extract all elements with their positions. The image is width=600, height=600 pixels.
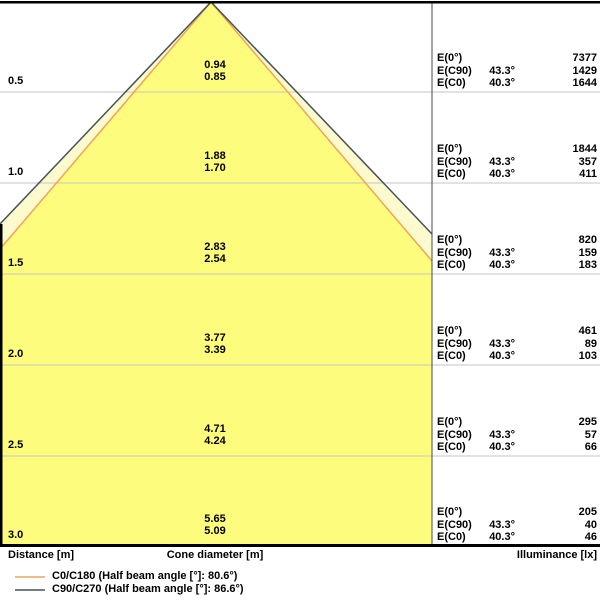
distance-tick-2-5: 2.5 — [8, 439, 23, 451]
e-label: E(C0) — [437, 531, 466, 543]
e-label: E(C90) — [437, 519, 472, 531]
table-row: E(0°)820 — [437, 234, 597, 247]
cone-diameter-values-0-5: 0.94 0.85 — [135, 59, 295, 83]
legend-label-c0-c180: C0/C180 (Half beam angle [°]: 80.6°) — [52, 570, 237, 583]
illuminance-value: 66 — [585, 441, 597, 453]
cone-diameter-c0: 0.85 — [135, 71, 295, 83]
table-row: E(0°)295 — [437, 416, 597, 429]
distance-tick-0-5: 0.5 — [8, 75, 23, 87]
e-label: E(C90) — [437, 65, 472, 77]
cone-diameter-c0: 5.09 — [135, 525, 295, 537]
e-label: E(0°) — [437, 234, 462, 246]
illuminance-value: 103 — [579, 350, 597, 362]
illuminance-value: 295 — [579, 416, 597, 428]
beam-angle: 43.3° — [489, 65, 515, 77]
illuminance-axis-label: Illuminance [lx] — [517, 549, 597, 561]
cone-diameter-c90: 3.77 — [135, 332, 295, 344]
e-label: E(C0) — [437, 168, 466, 180]
beam-angle: 43.3° — [489, 338, 515, 350]
beam-angle: 40.3° — [489, 350, 515, 362]
illuminance-table-0-5: E(0°)7377 E(C90)43.3°1429 E(C0)40.3°1644 — [437, 52, 597, 90]
illuminance-value: 159 — [579, 247, 597, 259]
e-label: E(C0) — [437, 77, 466, 89]
e-label: E(C0) — [437, 441, 466, 453]
table-row: E(C90)43.3°40 — [437, 519, 597, 532]
illuminance-value: 1429 — [573, 65, 597, 77]
cone-diameter-c0: 2.54 — [135, 253, 295, 265]
e-label: E(C0) — [437, 350, 466, 362]
e-label: E(0°) — [437, 506, 462, 518]
cone-diameter-c90: 0.94 — [135, 59, 295, 71]
illuminance-value: 57 — [585, 429, 597, 441]
cone-diameter-values-1-5: 2.83 2.54 — [135, 241, 295, 265]
table-row: E(0°)7377 — [437, 52, 597, 65]
distance-tick-1-5: 1.5 — [8, 257, 23, 269]
beam-angle: 40.3° — [489, 77, 515, 89]
table-row: E(C90)43.3°57 — [437, 429, 597, 442]
illuminance-value: 461 — [579, 325, 597, 337]
illuminance-value: 7377 — [573, 52, 597, 64]
e-label: E(0°) — [437, 143, 462, 155]
beam-angle: 43.3° — [489, 519, 515, 531]
illuminance-table-3-0: E(0°)205 E(C90)43.3°40 E(C0)40.3°46 — [437, 506, 597, 544]
beam-angle: 43.3° — [489, 247, 515, 259]
cone-diameter-values-1-0: 1.88 1.70 — [135, 150, 295, 174]
cone-diameter-axis-label: Cone diameter [m] — [135, 549, 295, 561]
table-row: E(0°)1844 — [437, 143, 597, 156]
illuminance-value: 183 — [579, 259, 597, 271]
cone-diameter-values-3-0: 5.65 5.09 — [135, 513, 295, 537]
distance-tick-1-0: 1.0 — [8, 166, 23, 178]
cone-diameter-c0: 1.70 — [135, 162, 295, 174]
table-row: E(0°)205 — [437, 506, 597, 519]
beam-angle: 40.3° — [489, 259, 515, 271]
e-label: E(C90) — [437, 247, 472, 259]
e-label: E(0°) — [437, 52, 462, 64]
illuminance-value: 40 — [585, 519, 597, 531]
table-row: E(C90)43.3°1429 — [437, 65, 597, 78]
illuminance-value: 46 — [585, 531, 597, 543]
distance-axis-label: Distance [m] — [8, 549, 74, 561]
illuminance-table-1-5: E(0°)820 E(C90)43.3°159 E(C0)40.3°183 — [437, 234, 597, 272]
illuminance-table-2-0: E(0°)461 E(C90)43.3°89 E(C0)40.3°103 — [437, 325, 597, 363]
e-label: E(C90) — [437, 156, 472, 168]
beam-angle: 40.3° — [489, 441, 515, 453]
beam-angle: 43.3° — [489, 429, 515, 441]
legend-label-c90-c270: C90/C270 (Half beam angle [°]: 86.6°) — [52, 583, 244, 596]
distance-tick-2-0: 2.0 — [8, 348, 23, 360]
illuminance-value: 1844 — [573, 143, 597, 155]
distance-tick-3-0: 3.0 — [8, 529, 23, 541]
cone-diameter-c90: 4.71 — [135, 423, 295, 435]
beam-angle: 43.3° — [489, 156, 515, 168]
e-label: E(C90) — [437, 338, 472, 350]
cone-diameter-c90: 2.83 — [135, 241, 295, 253]
illuminance-value: 1644 — [573, 77, 597, 89]
cone-diameter-c0: 4.24 — [135, 435, 295, 447]
cone-diameter-values-2-5: 4.71 4.24 — [135, 423, 295, 447]
beam-angle: 40.3° — [489, 531, 515, 543]
table-row: E(C0)40.3°66 — [437, 441, 597, 454]
light-cone-diagram: 0.5 1.0 1.5 2.0 2.5 3.0 0.94 0.85 1.88 1… — [0, 0, 600, 600]
table-row: E(C0)40.3°1644 — [437, 77, 597, 90]
table-row: E(C90)43.3°159 — [437, 247, 597, 260]
table-row: E(C0)40.3°46 — [437, 531, 597, 544]
c90-c270-line-swatch — [15, 588, 45, 592]
illuminance-table-1-0: E(0°)1844 E(C90)43.3°357 E(C0)40.3°411 — [437, 143, 597, 181]
cone-diameter-c90: 1.88 — [135, 150, 295, 162]
table-row: E(C90)43.3°357 — [437, 156, 597, 169]
cone-diameter-c0: 3.39 — [135, 344, 295, 356]
beam-angle: 40.3° — [489, 168, 515, 180]
e-label: E(0°) — [437, 416, 462, 428]
e-label: E(C0) — [437, 259, 466, 271]
table-row: E(C0)40.3°183 — [437, 259, 597, 272]
table-row: E(0°)461 — [437, 325, 597, 338]
illuminance-value: 357 — [579, 156, 597, 168]
table-row: E(C0)40.3°103 — [437, 350, 597, 363]
legend-item-c90-c270: C90/C270 (Half beam angle [°]: 86.6°) — [15, 583, 244, 596]
illuminance-table-2-5: E(0°)295 E(C90)43.3°57 E(C0)40.3°66 — [437, 416, 597, 454]
table-row: E(C90)43.3°89 — [437, 338, 597, 351]
illuminance-value: 820 — [579, 234, 597, 246]
cone-diameter-c90: 5.65 — [135, 513, 295, 525]
c0-c180-line-swatch — [15, 575, 45, 579]
table-row: E(C0)40.3°411 — [437, 168, 597, 181]
cone-diameter-values-2-0: 3.77 3.39 — [135, 332, 295, 356]
e-label: E(0°) — [437, 325, 462, 337]
illuminance-value: 89 — [585, 338, 597, 350]
legend-item-c0-c180: C0/C180 (Half beam angle [°]: 80.6°) — [15, 570, 237, 583]
illuminance-value: 411 — [579, 168, 597, 180]
illuminance-value: 205 — [579, 506, 597, 518]
e-label: E(C90) — [437, 429, 472, 441]
